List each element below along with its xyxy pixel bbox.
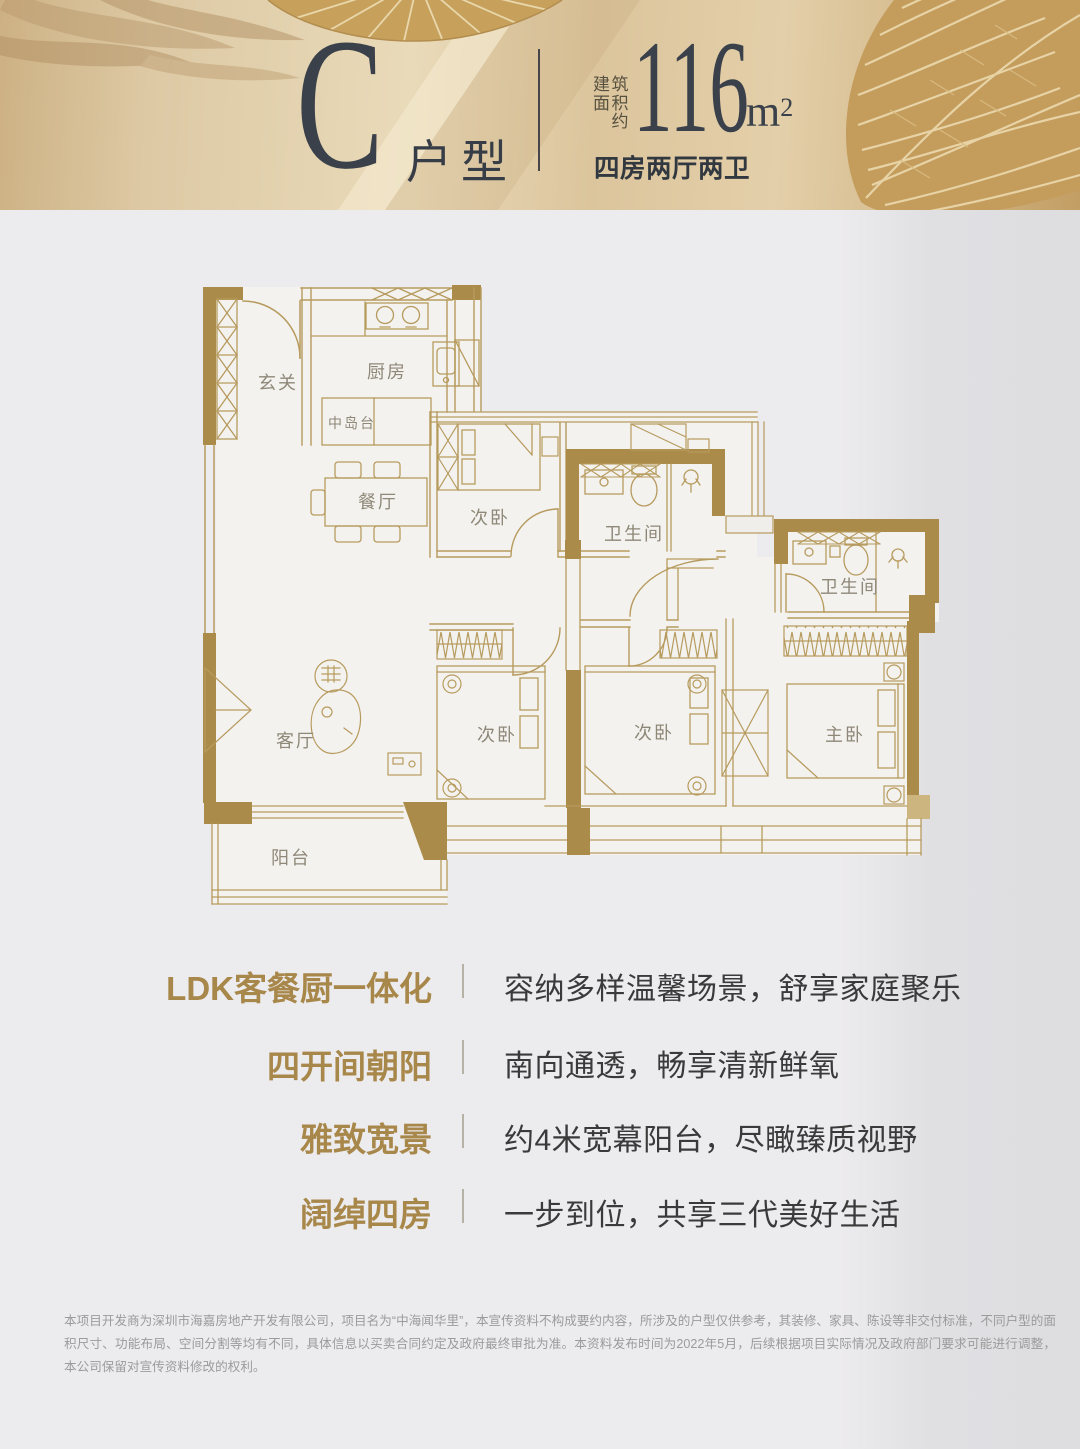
svg-text:次卧: 次卧	[477, 725, 517, 745]
svg-text:玄关: 玄关	[258, 373, 298, 393]
svg-text:主卧: 主卧	[825, 725, 865, 745]
svg-text:客厅: 客厅	[276, 731, 316, 751]
svg-text:中岛台: 中岛台	[328, 415, 376, 431]
svg-text:阳台: 阳台	[271, 848, 311, 868]
svg-text:厨房: 厨房	[367, 362, 407, 382]
svg-text:餐厅: 餐厅	[358, 492, 398, 512]
svg-text:次卧: 次卧	[634, 723, 674, 743]
svg-text:卫生间: 卫生间	[820, 577, 880, 597]
svg-text:次卧: 次卧	[470, 508, 510, 528]
svg-text:卫生间: 卫生间	[604, 524, 664, 544]
